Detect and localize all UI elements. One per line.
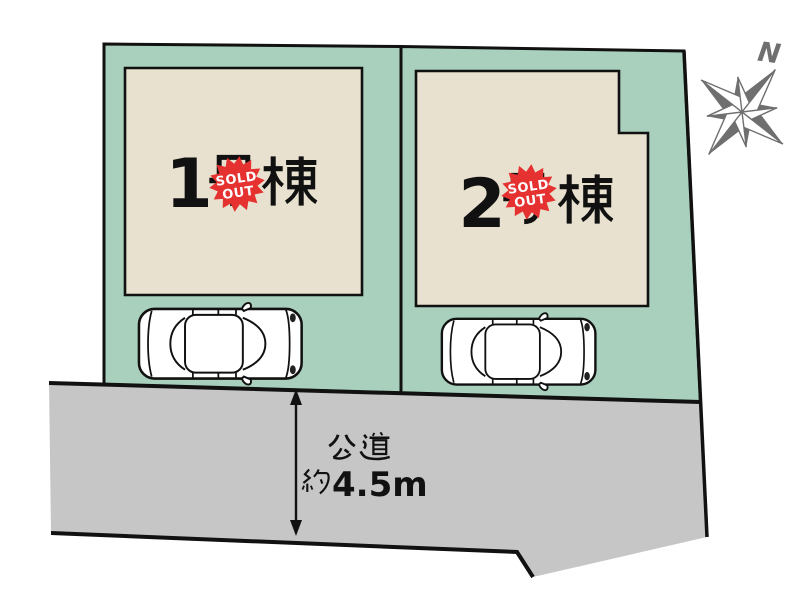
road-width-value: 4.5m xyxy=(332,465,428,505)
building-1-number: 1 xyxy=(165,145,212,224)
car-2-icon xyxy=(442,313,596,390)
car-1-icon xyxy=(139,303,302,385)
site-plan-diagram: 1 2 SOLD OUT SOLD OUT 4.5m N xyxy=(0,0,800,600)
site-plan-svg: 1 2 SOLD OUT SOLD OUT 4.5m N xyxy=(0,0,800,600)
compass-north-label: N xyxy=(756,37,783,71)
building-2-number: 2 xyxy=(458,165,505,244)
